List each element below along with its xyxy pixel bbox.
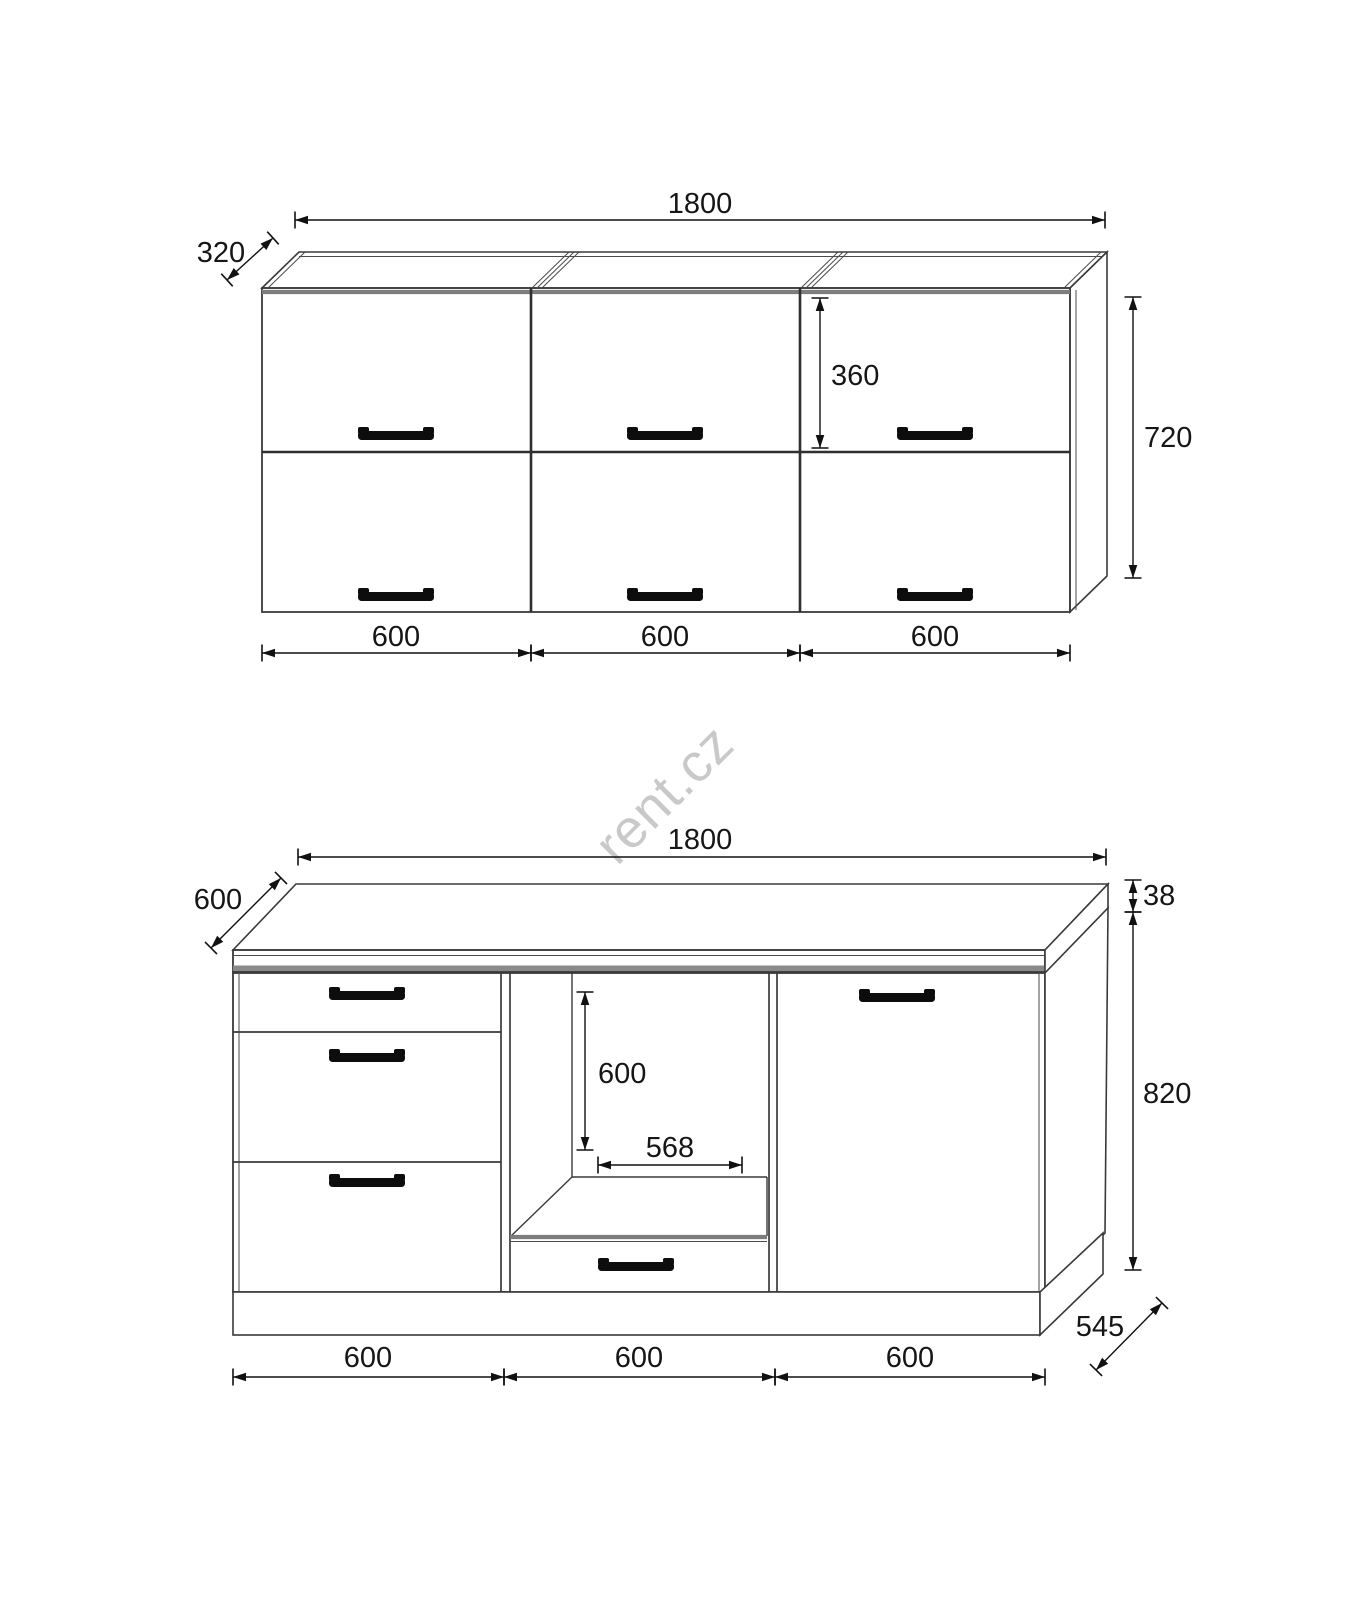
- handle-bar: [329, 991, 405, 1000]
- handle-bar: [329, 1178, 405, 1187]
- lower-section-width-label-3: 600: [886, 1342, 934, 1374]
- dimension-arrowhead: [1092, 216, 1105, 225]
- dimension-arrowhead: [598, 1161, 611, 1170]
- worktop-depth-label: 600: [194, 884, 242, 916]
- dimension-arrowhead: [518, 649, 531, 658]
- dimension-arrowhead: [787, 649, 800, 658]
- dimension-arrowhead: [1129, 880, 1138, 893]
- handle-bar: [627, 592, 703, 601]
- dimension-arrowhead: [800, 649, 813, 658]
- technical-drawing-canvas: rent.cz: [0, 0, 1350, 1600]
- dimension-arrowhead: [233, 1373, 246, 1382]
- dimension-arrowhead: [729, 1161, 742, 1170]
- upper-section-width-label-2: 600: [641, 621, 689, 653]
- upper-front-face: [262, 288, 1070, 612]
- dimension-arrowhead: [262, 649, 275, 658]
- dimension-arrowhead: [1129, 899, 1138, 912]
- dimension-arrowhead: [1057, 649, 1070, 658]
- dimension-arrowhead: [775, 1373, 788, 1382]
- base-right-side-face: [1045, 908, 1108, 1292]
- dimension-arrowhead: [1129, 565, 1138, 578]
- cabinet-handle: [358, 427, 434, 440]
- dimension-arrowhead: [295, 216, 308, 225]
- upper-total-height-label: 720: [1144, 422, 1192, 454]
- niche-width-label: 568: [646, 1132, 694, 1164]
- dimension-arrowhead: [504, 1373, 517, 1382]
- cabinet-handle: [329, 987, 405, 1000]
- body-height-label: 820: [1143, 1078, 1191, 1110]
- worktop-shadow-band: [233, 966, 1045, 973]
- worktop-top-face: [233, 884, 1108, 950]
- upper-section-width-label-3: 600: [911, 621, 959, 653]
- dimension-arrowhead: [1129, 912, 1138, 925]
- cabinet-handle: [897, 427, 973, 440]
- cabinet-handle: [598, 1258, 674, 1271]
- dimension-arrowhead: [816, 298, 825, 311]
- handle-bar: [897, 592, 973, 601]
- upper-section-width-label-1: 600: [372, 621, 420, 653]
- lower-section-width-label-2: 600: [615, 1342, 663, 1374]
- upper-door-height-label: 360: [831, 360, 879, 392]
- body-depth-label: 545: [1076, 1311, 1124, 1343]
- base-front-face: [233, 972, 1045, 1292]
- appliance-niche: [510, 972, 767, 1242]
- cabinet-handle: [897, 588, 973, 601]
- upper-total-width-label: 1800: [668, 188, 733, 220]
- niche-floor-diagonal: [510, 1177, 572, 1237]
- upper-top-face: [262, 252, 1107, 288]
- handle-bar: [329, 1053, 405, 1062]
- handle-bar: [358, 431, 434, 440]
- handle-bar: [859, 993, 935, 1002]
- dimension-arrowhead: [531, 649, 544, 658]
- dimension-arrowhead: [1129, 1257, 1138, 1270]
- lower-total-width-label: 1800: [668, 824, 733, 856]
- worktop-thickness-label: 38: [1143, 880, 1175, 912]
- dimension-arrowhead: [1093, 853, 1106, 862]
- dimension-arrowhead: [1032, 1373, 1045, 1382]
- cabinet-handle: [627, 427, 703, 440]
- handle-bar: [598, 1262, 674, 1271]
- dimension-arrowhead: [298, 853, 311, 862]
- plinth-front-face: [233, 1292, 1040, 1335]
- cabinet-handle: [329, 1174, 405, 1187]
- handle-bar: [627, 431, 703, 440]
- handle-bar: [358, 592, 434, 601]
- cabinet-handle: [358, 588, 434, 601]
- cabinet-handle: [859, 989, 935, 1002]
- handle-bar: [897, 431, 973, 440]
- furniture-technical-drawing-page: rent.cz: [0, 0, 1350, 1600]
- dimension-arrowhead: [491, 1373, 504, 1382]
- dimension-arrowhead: [1129, 297, 1138, 310]
- cabinet-handle: [627, 588, 703, 601]
- lower-section-width-label-1: 600: [344, 1342, 392, 1374]
- dimension-arrowhead: [762, 1373, 775, 1382]
- dimension-arrowhead: [816, 435, 825, 448]
- niche-height-label: 600: [598, 1058, 646, 1090]
- dimension-arrowhead: [581, 1137, 590, 1150]
- upper-depth-label: 320: [197, 237, 245, 269]
- cabinet-handle: [329, 1049, 405, 1062]
- dimension-arrowhead: [581, 992, 590, 1005]
